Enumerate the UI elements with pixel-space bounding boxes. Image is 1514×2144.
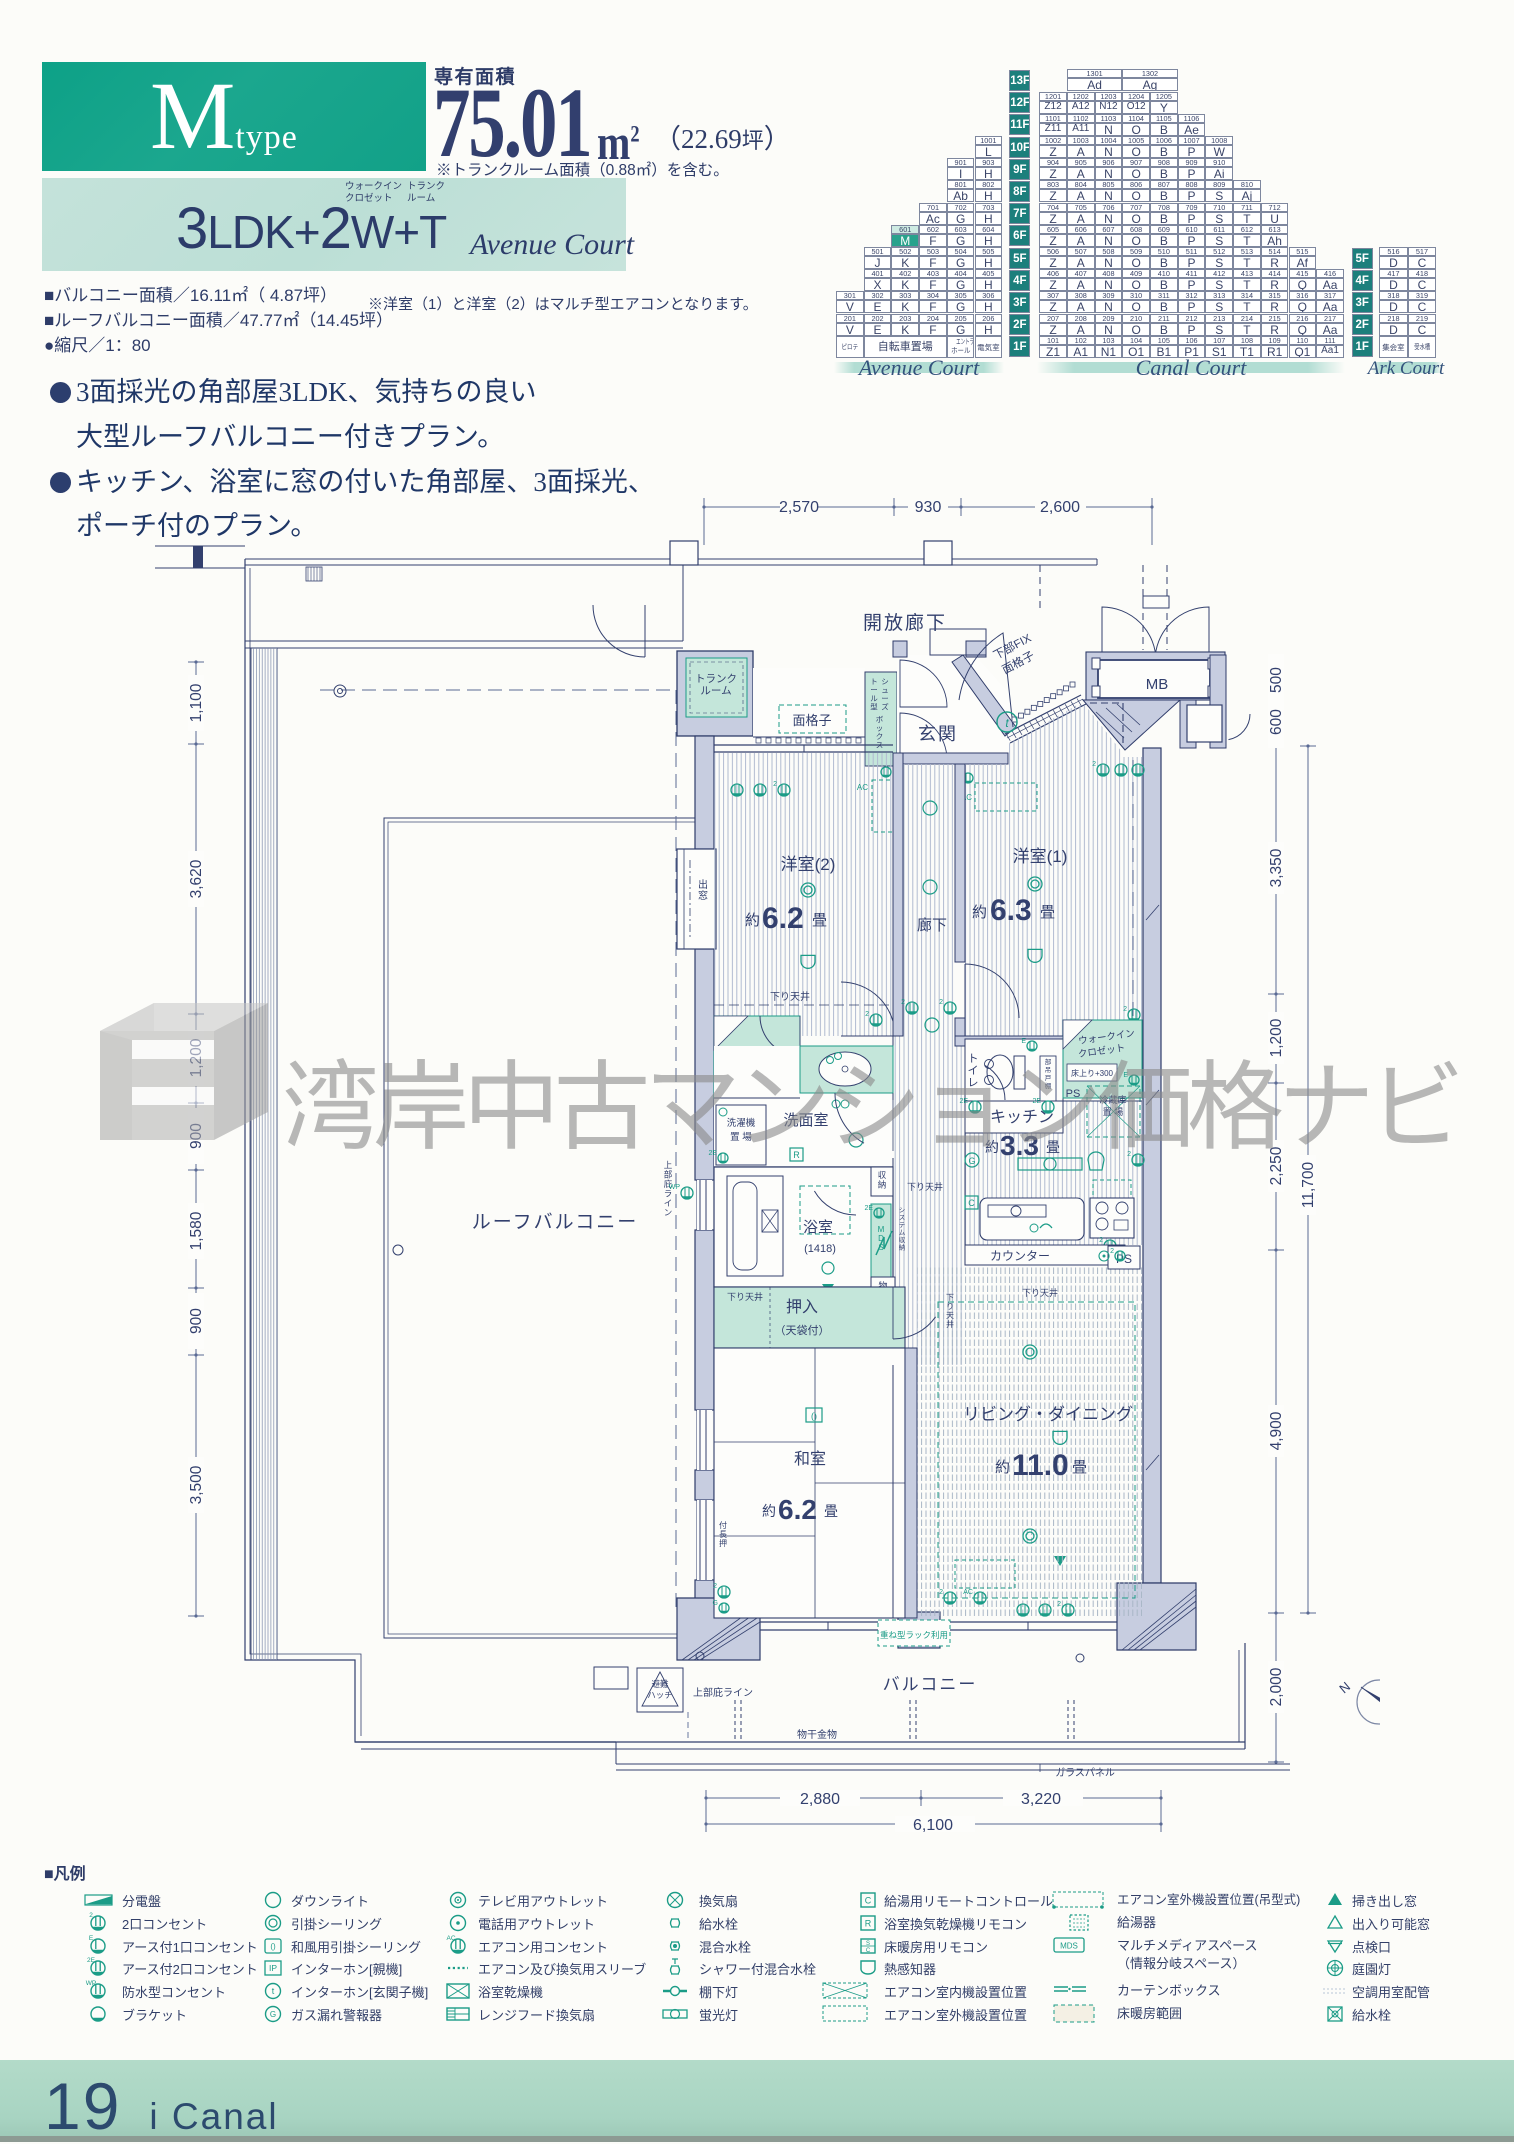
svg-text:テ: テ (899, 1221, 906, 1229)
svg-text:バルコニー: バルコニー (883, 1675, 978, 1694)
svg-text:3,620: 3,620 (188, 859, 205, 898)
svg-text:り: り (946, 1302, 954, 1311)
svg-text:2E: 2E (864, 1205, 873, 1212)
svg-text:(1418): (1418) (804, 1243, 836, 1255)
svg-text:1,100: 1,100 (188, 683, 205, 722)
svg-text:洋室(1): 洋室(1) (1013, 847, 1068, 866)
svg-text:下り天井: 下り天井 (1022, 1287, 1058, 1298)
svg-text:収: 収 (899, 1236, 906, 1244)
svg-text:3,500: 3,500 (188, 1465, 205, 1504)
svg-text:出: 出 (698, 878, 708, 891)
svg-text:6.2: 6.2 (778, 1494, 817, 1525)
svg-text:M: M (878, 1225, 885, 1234)
svg-text:2: 2 (1092, 761, 1096, 768)
svg-text:下り天井: 下り天井 (770, 990, 810, 1003)
svg-text:6.3: 6.3 (990, 894, 1032, 927)
svg-text:C: C (968, 1198, 975, 1208)
svg-text:廊下: 廊下 (917, 917, 947, 934)
svg-text:約: 約 (972, 904, 987, 921)
svg-text:2,000: 2,000 (1268, 1667, 1285, 1706)
svg-text:AC: AC (963, 1589, 973, 1596)
svg-text:ズ: ズ (881, 702, 889, 712)
svg-text:洋室(2): 洋室(2) (781, 855, 836, 874)
svg-text:AC: AC (446, 1935, 455, 1942)
svg-text:2: 2 (1057, 1601, 1061, 1608)
svg-text:11.0: 11.0 (1012, 1449, 1069, 1482)
svg-text:下り天井: 下り天井 (727, 1291, 763, 1302)
svg-text:R: R (865, 1918, 872, 1928)
svg-text:畳: 畳 (812, 912, 827, 929)
svg-text:和室: 和室 (794, 1450, 826, 1468)
svg-text:t: t (272, 1986, 275, 1996)
svg-text:2E: 2E (87, 1957, 96, 1964)
svg-text:畳: 畳 (1072, 1459, 1087, 1476)
svg-text:2,570: 2,570 (779, 499, 819, 516)
svg-text:1,580: 1,580 (188, 1211, 205, 1250)
svg-text:C: C (866, 1948, 871, 1954)
svg-text:約: 約 (995, 1459, 1010, 1476)
svg-text:G: G (270, 2010, 276, 2019)
svg-text:押入: 押入 (786, 1298, 818, 1316)
svg-text:3,350: 3,350 (1268, 848, 1285, 887)
svg-text:付: 付 (719, 1520, 727, 1530)
svg-text:ム: ム (899, 1229, 906, 1237)
svg-text:3,220: 3,220 (1021, 1791, 1061, 1808)
svg-text:型: 型 (870, 703, 878, 712)
svg-text:E: E (89, 1935, 94, 1942)
svg-text:ン: ン (664, 1208, 673, 1218)
svg-text:MB: MB (1146, 676, 1169, 693)
svg-text:C: C (865, 1896, 872, 1906)
svg-text:N: N (1336, 1679, 1353, 1697)
svg-text:600: 600 (1268, 709, 1285, 735)
svg-text:900: 900 (188, 1308, 205, 1334)
svg-text:トランク: トランク (695, 673, 737, 685)
svg-text:WP: WP (86, 1980, 96, 1987)
svg-text:下り天井: 下り天井 (907, 1181, 943, 1192)
svg-text:物干金物: 物干金物 (797, 1728, 837, 1741)
svg-text:シ: シ (899, 1207, 906, 1214)
svg-text:納: 納 (878, 1180, 887, 1190)
svg-text:カウンター: カウンター (990, 1249, 1050, 1263)
svg-text:畳: 畳 (1040, 904, 1055, 921)
svg-text:2: 2 (89, 1912, 93, 1919)
svg-text:(): () (811, 1411, 817, 1421)
svg-text:ルーフバルコニー: ルーフバルコニー (472, 1212, 638, 1233)
svg-text:MDS: MDS (1060, 1941, 1078, 1950)
svg-text:重ね型ラック利用: 重ね型ラック利用 (880, 1630, 948, 1640)
svg-text:2: 2 (1099, 1237, 1103, 1244)
svg-text:500: 500 (1268, 667, 1285, 693)
svg-text:2,880: 2,880 (800, 1791, 840, 1808)
svg-text:押: 押 (719, 1538, 727, 1548)
svg-text:約: 約 (745, 912, 760, 929)
svg-text:ガラスパネル: ガラスパネル (1055, 1767, 1115, 1779)
svg-text:(): () (270, 1942, 276, 1951)
svg-text:浴室: 浴室 (803, 1219, 833, 1236)
svg-text:2: 2 (901, 999, 905, 1006)
svg-text:納: 納 (899, 1243, 906, 1252)
svg-text:ス: ス (899, 1214, 906, 1222)
svg-text:下: 下 (946, 1293, 954, 1302)
svg-text:2,600: 2,600 (1040, 499, 1080, 516)
svg-text:6,100: 6,100 (913, 1817, 953, 1834)
svg-text:畳: 畳 (824, 1503, 838, 1519)
svg-text:井: 井 (946, 1319, 954, 1329)
svg-text:開放廊下: 開放廊下 (863, 612, 947, 634)
svg-text:G: G (713, 1600, 718, 1607)
svg-text:収: 収 (878, 1170, 887, 1180)
svg-text:約: 約 (762, 1503, 776, 1519)
svg-text:天: 天 (946, 1311, 954, 1320)
svg-text:2: 2 (713, 1583, 717, 1590)
svg-text:2: 2 (865, 1011, 869, 1018)
svg-text:（天袋付）: （天袋付） (775, 1323, 830, 1337)
svg-text:玄関: 玄関 (918, 724, 958, 744)
svg-text:930: 930 (915, 499, 942, 516)
svg-text:長: 長 (719, 1530, 727, 1539)
svg-text:2: 2 (939, 999, 943, 1006)
svg-text:イ: イ (664, 1198, 673, 1208)
svg-text:リビング・ダイニング: リビング・ダイニング (963, 1405, 1133, 1424)
svg-text:上部庇ライン: 上部庇ライン (693, 1686, 753, 1699)
svg-text:ルーム: ルーム (700, 685, 731, 697)
svg-text:部: 部 (664, 1170, 673, 1180)
svg-text:ハッチ: ハッチ (647, 1690, 673, 1700)
svg-text:2: 2 (939, 1589, 943, 1596)
svg-text:AC: AC (857, 783, 868, 792)
svg-text:面格子: 面格子 (792, 713, 831, 728)
svg-text:2: 2 (773, 781, 777, 788)
svg-text:2: 2 (1123, 1006, 1127, 1013)
svg-text:IP: IP (269, 1963, 277, 1973)
svg-text:窓: 窓 (698, 889, 708, 902)
svg-text:避難: 避難 (651, 1679, 669, 1689)
svg-text:2: 2 (1110, 1248, 1114, 1255)
svg-text:WP: WP (669, 1184, 681, 1191)
svg-text:4,900: 4,900 (1268, 1411, 1285, 1450)
svg-text:6.2: 6.2 (762, 902, 804, 935)
